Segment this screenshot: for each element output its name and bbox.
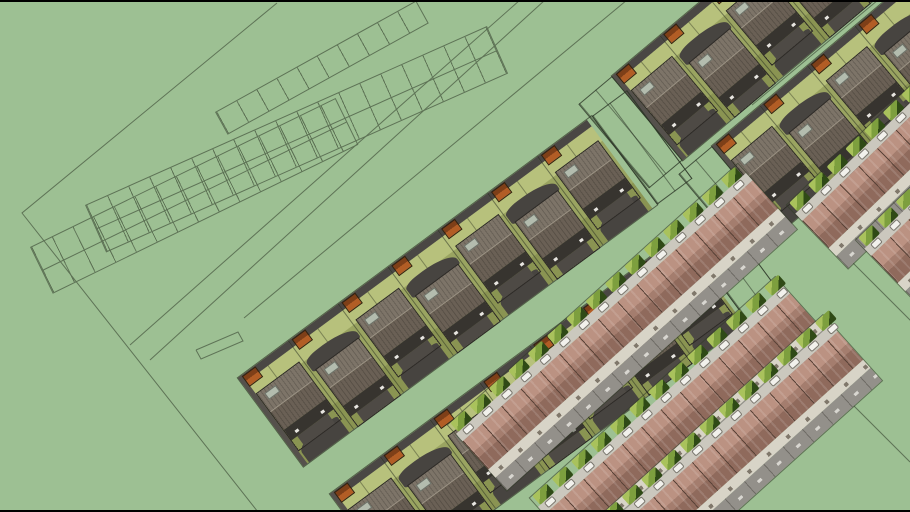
roof-skylight [734, 1, 750, 16]
roof-skylight [416, 477, 432, 492]
roof-skylight [697, 53, 713, 68]
roof-skylight [639, 81, 655, 96]
roof-skylight [797, 123, 813, 138]
letterbox-top [0, 0, 910, 2]
roof-skylight [739, 151, 755, 166]
roof-skylight [892, 43, 908, 58]
model-viewport[interactable] [0, 0, 910, 512]
road-line [196, 332, 243, 359]
roof-skylight [464, 238, 480, 253]
roof-skylight [563, 164, 579, 179]
roof-skylight [523, 214, 539, 229]
roof-skylight [324, 361, 340, 376]
roof-skylight [264, 385, 280, 400]
roof-skylight [834, 71, 850, 86]
roof-skylight [423, 287, 439, 302]
roof-skylight [364, 311, 380, 326]
